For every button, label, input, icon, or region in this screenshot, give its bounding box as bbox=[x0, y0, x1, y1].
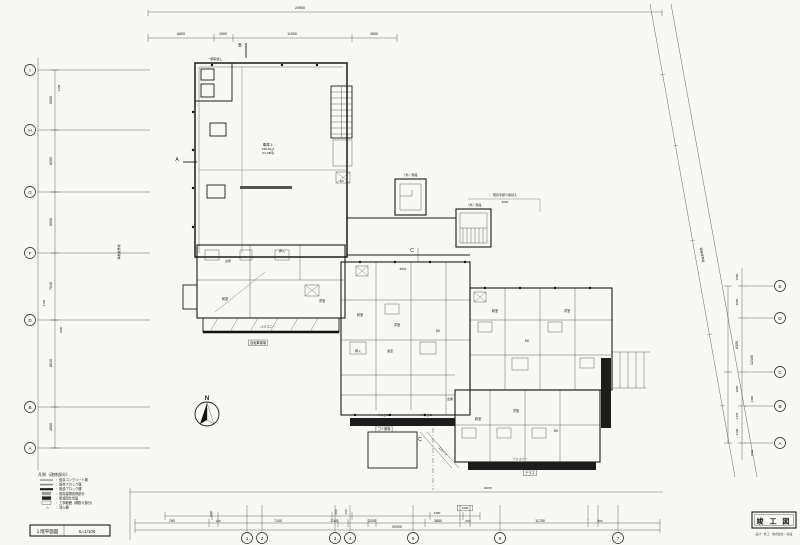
legend-item-gray-line: ：既存ブロック塀 bbox=[40, 482, 82, 487]
dimension-label: 12100 bbox=[750, 355, 754, 365]
legend-item-label: ：新設ブロック塀 bbox=[56, 486, 82, 491]
grid-bubble-label: 3 bbox=[334, 536, 337, 541]
legend-item-label: ：工事範囲（網掛け部分） bbox=[56, 500, 94, 505]
dimension-label-text: 1900 bbox=[219, 32, 227, 36]
dimension-label: 760 bbox=[169, 519, 175, 523]
dimension-label-text: 2000 bbox=[735, 298, 739, 305]
dimension-label: 6000 bbox=[49, 157, 53, 165]
drawing-sheet: 車庫１ 236.32㎡ (71.48坪) bbox=[0, 0, 800, 545]
dimension-label: 1280 bbox=[434, 511, 441, 515]
annotation-label-text: スロープ bbox=[437, 445, 449, 457]
room-labels: バルコニーバルコニーバルコニーバルコニー自転車置場ゴミ置場テラス和室洋室DK押入… bbox=[222, 179, 570, 476]
room-label: 浴室 bbox=[387, 348, 393, 353]
room-label-text: 洋室 bbox=[564, 308, 570, 313]
dimension-label: 8040 bbox=[49, 359, 53, 367]
legend-item-label: ：既存ブロック塀 bbox=[56, 482, 82, 487]
dimension-label-text: 2100 bbox=[57, 84, 61, 91]
grid-bubble-label: A bbox=[28, 446, 32, 451]
north-arrow: N bbox=[195, 396, 219, 426]
dimension-label-text: 12100 bbox=[750, 355, 754, 365]
dimension-label-text: 600 bbox=[344, 509, 348, 514]
legend: 凡例（改修部分） ：既存コンクリート塀：既存ブロック塀：新設ブロック塀：既存建物… bbox=[38, 471, 94, 510]
room-label-text: 洋室 bbox=[513, 408, 519, 413]
dimension-chains bbox=[51, 34, 746, 533]
wall-fill bbox=[601, 358, 611, 428]
dimension-label-text: 6300 bbox=[735, 341, 739, 349]
grid-bubble-label: 5 bbox=[412, 536, 415, 541]
room-label: 押入 bbox=[279, 248, 285, 253]
grid-bubble-G: G bbox=[25, 187, 151, 198]
annotation-label-text: （外）階段 bbox=[402, 172, 417, 177]
annotation-label: A bbox=[175, 157, 179, 163]
annotation-label-text: C bbox=[418, 437, 422, 443]
grid-bubble-A: A bbox=[25, 443, 151, 454]
dimension-label-text: 600 bbox=[334, 509, 338, 514]
dimension-label-text: 7100 bbox=[274, 519, 282, 523]
column-dots bbox=[354, 261, 591, 416]
room-label: 和室 bbox=[475, 416, 481, 421]
legend-item-label: ：既存コンクリート塀 bbox=[56, 477, 89, 482]
garage-tsubo: (71.48坪) bbox=[262, 150, 275, 155]
room-label-text: テラス bbox=[525, 470, 535, 475]
balcony-band bbox=[350, 418, 455, 426]
dimension-label-text: 3000 bbox=[502, 200, 509, 204]
dimension-label: 1500 bbox=[750, 449, 754, 456]
room-label-text: 和室 bbox=[222, 296, 228, 301]
annotation-label: スロープ bbox=[437, 445, 449, 457]
dimension-label: 6600 bbox=[177, 32, 185, 36]
annotation-label: B bbox=[238, 43, 242, 49]
room-label-text: バルコニー bbox=[513, 457, 528, 461]
room-label-text: 浴室 bbox=[387, 348, 393, 353]
grid-bubble-label: H bbox=[28, 128, 31, 133]
grid-bubble-label: D bbox=[778, 316, 782, 321]
dimension-label: 600 bbox=[334, 509, 338, 514]
room-label-text: 押入 bbox=[355, 348, 361, 353]
dimension-label-text: 1280 bbox=[434, 511, 441, 515]
dimension-label-text: 1470 bbox=[735, 412, 739, 419]
garage-room-label: 車庫１ 236.32㎡ (71.48坪) bbox=[262, 142, 275, 155]
dimension-label-text: 760 bbox=[169, 519, 175, 523]
balcony-band bbox=[468, 462, 596, 470]
annotation-label-text: A bbox=[175, 157, 179, 163]
dimension-label: 1800 bbox=[735, 385, 739, 392]
dimension-label-text: 1500 bbox=[735, 273, 739, 280]
legend-item-thick-line: ：新設ブロック塀 bbox=[40, 486, 82, 491]
room-label: DK bbox=[436, 329, 441, 333]
grid-bubble-label: B bbox=[778, 404, 781, 409]
annotation-label-text: C bbox=[410, 248, 414, 254]
central-unit-block bbox=[341, 261, 650, 470]
dimension-label-text: 1500 bbox=[750, 449, 754, 456]
grid-bubble-H: H bbox=[25, 125, 151, 136]
dimension-label-text: 130 bbox=[215, 519, 220, 523]
grid-bubble-label: 7 bbox=[617, 536, 620, 541]
room-label-text: 自転車置場 bbox=[250, 340, 267, 345]
grid-bubble-I: I bbox=[25, 65, 151, 76]
dimension-label: 2000 bbox=[735, 298, 739, 305]
room-label: 台所 bbox=[225, 258, 231, 263]
dimension-label-text: 24900 bbox=[295, 6, 305, 10]
room-label: DK bbox=[554, 429, 559, 433]
dimension-labels: 2490066001900119004500600060006000704080… bbox=[42, 6, 754, 529]
dimension-label-text: 50900 bbox=[392, 525, 402, 529]
room-label-text: 和室 bbox=[492, 308, 498, 313]
dimension-label: 24900 bbox=[295, 6, 305, 10]
dimension-label: 600 bbox=[344, 509, 348, 514]
dimension-label-text: 6000 bbox=[49, 157, 53, 165]
site-boundary bbox=[38, 4, 757, 540]
grid-bubble-B: B bbox=[25, 402, 151, 413]
grid-bubble-D: D bbox=[25, 315, 151, 326]
dimension-label: 3850 bbox=[434, 519, 442, 523]
dimension-label: 1000 bbox=[457, 505, 472, 511]
annotation-label: 一部取壊し bbox=[207, 56, 222, 61]
dimension-label-text: 4190 bbox=[735, 428, 739, 435]
dimension-label: 1160 bbox=[330, 519, 338, 523]
grid-bubble-label: F bbox=[29, 251, 32, 256]
dimension-label: 6000 bbox=[49, 96, 53, 104]
grid-bubble-label: B bbox=[28, 405, 31, 410]
room-label-text: 台所 bbox=[225, 258, 231, 263]
dimension-label-text: 1500 bbox=[59, 326, 63, 333]
legend-item-double-line: ：既存コンクリート塀 bbox=[40, 477, 89, 482]
sheet-label-box: １階平面図 S=1/100 bbox=[30, 525, 110, 536]
dimension-label-text: 2400 bbox=[750, 395, 754, 402]
dimension-label-text: 34070 bbox=[484, 486, 493, 490]
annotation-label: 既存手摺り取替え bbox=[493, 192, 517, 197]
dimension-label: 8697 bbox=[400, 267, 407, 271]
dimension-label: 11900 bbox=[287, 32, 297, 36]
grid-bubble-6: 6 bbox=[495, 505, 506, 544]
grid-bubble-label: 4 bbox=[349, 536, 352, 541]
dimension-label: 2100 bbox=[57, 84, 61, 91]
room-label-text: 押入 bbox=[279, 248, 285, 253]
floor-plan-canvas: 車庫１ 236.32㎡ (71.48坪) bbox=[0, 0, 800, 545]
room-label: 洋室 bbox=[513, 408, 519, 413]
annotation-label-text: 道路境界線 bbox=[699, 247, 707, 263]
grid-bubble-1: 1 bbox=[242, 505, 253, 544]
annotation-label: （外）階段 bbox=[466, 202, 481, 207]
dimension-label: 6300 bbox=[735, 341, 739, 349]
legend-item-triangle: △：消火器 bbox=[46, 505, 70, 510]
room-label-text: DK bbox=[525, 339, 530, 343]
title-block: 竣 工 図 設計・施工 株式会社○○建設 bbox=[752, 512, 796, 536]
dimension-label: 11750 bbox=[535, 519, 545, 523]
dimension-label: 2400 bbox=[750, 395, 754, 402]
room-label-text: 和室 bbox=[475, 416, 481, 421]
room-label: 洋室 bbox=[394, 322, 400, 327]
dimension-label-text: 1160 bbox=[330, 519, 338, 523]
room-label: 自転車置場 bbox=[248, 340, 267, 346]
grid-bubble-F: F bbox=[25, 248, 151, 259]
legend-item-label: ：既存建物改修部分 bbox=[56, 491, 85, 496]
annotation-label-text: 一部取壊し bbox=[207, 56, 222, 61]
dimension-label: 1500 bbox=[59, 326, 63, 333]
room-label-text: 洋室 bbox=[394, 322, 400, 327]
legend-item-open-box: ：工事範囲（網掛け部分） bbox=[42, 500, 94, 505]
dimension-label-text: 7040 bbox=[49, 282, 53, 290]
dimension-label: 7100 bbox=[274, 519, 282, 523]
room-label: 和室 bbox=[357, 312, 363, 317]
room-label-text: 玄関 bbox=[447, 396, 453, 401]
annotation-label-text: 隣地境界線 bbox=[116, 244, 121, 259]
room-label: EV bbox=[340, 179, 344, 183]
legend-item-label: ：消火器 bbox=[56, 505, 70, 510]
dimension-label-text: 1370 bbox=[209, 510, 213, 517]
dimension-label-text: 6000 bbox=[49, 96, 53, 104]
dimension-label-text: 8040 bbox=[49, 359, 53, 367]
drawing-title: 竣 工 図 bbox=[757, 517, 792, 526]
legend-item-label: ：新設間仕切壁 bbox=[56, 495, 79, 500]
dimension-label-text: 3850 bbox=[434, 519, 442, 523]
legend-rows: ：既存コンクリート塀：既存ブロック塀：新設ブロック塀：既存建物改修部分：新設間仕… bbox=[40, 477, 94, 510]
room-label-text: EV bbox=[340, 179, 344, 183]
dimension-label-text: 6600 bbox=[177, 32, 185, 36]
dimension-label-text: 11900 bbox=[287, 32, 297, 36]
room-label: 和室 bbox=[492, 308, 498, 313]
sheet-scale: S=1/100 bbox=[79, 529, 96, 534]
annotation-label-text: B bbox=[238, 43, 242, 49]
annotation-label: C bbox=[410, 248, 414, 254]
room-label-text: ゴミ置場 bbox=[378, 426, 392, 431]
dimension-label-text: 1140 bbox=[42, 299, 46, 306]
dimension-label-text: 8697 bbox=[400, 267, 407, 271]
dimension-label-text: 400 bbox=[465, 519, 470, 523]
grid-bubble-A: A bbox=[745, 438, 786, 449]
dimension-label: 130 bbox=[215, 519, 220, 523]
dimension-label: 1370 bbox=[209, 510, 213, 517]
dimension-label-text: 1800 bbox=[735, 385, 739, 392]
grid-bubble-label: A bbox=[778, 441, 782, 446]
sheet-label: １階平面図 bbox=[36, 528, 59, 535]
grid-bubble-label: 1 bbox=[246, 536, 249, 541]
exterior-stairs bbox=[347, 179, 540, 255]
room-label: 洋室 bbox=[319, 298, 325, 303]
column-dots bbox=[192, 64, 318, 228]
room-label-text: バルコニー bbox=[378, 413, 393, 417]
legend-header: 凡例（改修部分） bbox=[38, 471, 70, 477]
annotation-label-text: （外）階段 bbox=[466, 202, 481, 207]
dimension-label-text: 800 bbox=[597, 519, 602, 523]
dimension-label: 4190 bbox=[735, 428, 739, 435]
grid-bubble-2: 2 bbox=[257, 505, 268, 544]
grid-bubble-label: E bbox=[778, 284, 781, 289]
room-label: 押入 bbox=[355, 348, 361, 353]
dimension-label: 1500 bbox=[735, 273, 739, 280]
room-label-text: DK bbox=[436, 329, 441, 333]
grid-bubbles: IHGFDBAEDCBA1234567 bbox=[25, 65, 786, 544]
dimension-label: 4500 bbox=[49, 423, 53, 431]
annotation-label: C bbox=[418, 437, 422, 443]
grid-bubble-D: D bbox=[745, 313, 786, 324]
grid-bubble-7: 7 bbox=[613, 505, 624, 544]
dimension-label: 800 bbox=[597, 519, 602, 523]
room-label: ゴミ置場 bbox=[376, 426, 392, 432]
room-label: バルコニー bbox=[260, 325, 276, 329]
annotation-label: （外）階段 bbox=[402, 172, 417, 177]
left-unit-block bbox=[183, 245, 345, 332]
annotation-label: 隣地境界線 bbox=[116, 244, 121, 259]
grid-bubble-5: 5 bbox=[408, 505, 419, 544]
dimension-label: 400 bbox=[465, 519, 470, 523]
grid-bubble-label: G bbox=[28, 190, 32, 195]
dimension-label: 34070 bbox=[484, 486, 493, 490]
room-label: バルコニー bbox=[421, 413, 436, 417]
legend-item-hatch-box: ：既存建物改修部分 bbox=[42, 491, 85, 496]
dimension-label-text: 4500 bbox=[370, 32, 378, 36]
room-label-text: 和室 bbox=[357, 312, 363, 317]
dimension-label: 50900 bbox=[392, 525, 402, 529]
room-label: 玄関 bbox=[447, 396, 453, 401]
garage-block: 車庫１ 236.32㎡ (71.48坪) bbox=[192, 63, 352, 257]
drawing-subtitle: 設計・施工 株式会社○○建設 bbox=[756, 532, 793, 536]
legend-symbol-triangle: △ bbox=[46, 506, 49, 510]
room-label-text: DK bbox=[554, 429, 559, 433]
grid-bubble-label: C bbox=[778, 370, 782, 375]
dimension-label: 4500 bbox=[370, 32, 378, 36]
room-label-text: バルコニー bbox=[260, 325, 276, 329]
dimension-label-text: 4500 bbox=[49, 423, 53, 431]
room-label: DK bbox=[525, 339, 530, 343]
grid-bubble-label: 2 bbox=[261, 536, 264, 541]
room-label: 洋室 bbox=[564, 308, 570, 313]
dimension-label-text: 6000 bbox=[49, 218, 53, 226]
grid-bubble-E: E bbox=[745, 281, 786, 292]
annotation-label: 道路境界線 bbox=[699, 247, 707, 263]
dimension-label: 1140 bbox=[42, 299, 46, 306]
grid-bubble-label: I bbox=[29, 68, 30, 73]
legend-item-solid-box: ：新設間仕切壁 bbox=[42, 495, 79, 500]
room-label: バルコニー bbox=[378, 413, 393, 417]
room-label-text: バルコニー bbox=[421, 413, 436, 417]
dimension-label: 1470 bbox=[735, 412, 739, 419]
north-label: N bbox=[205, 396, 209, 402]
grid-bubble-label: D bbox=[28, 318, 32, 323]
room-label-text: 洋室 bbox=[319, 298, 325, 303]
grid-bubble-C: C bbox=[745, 367, 786, 378]
dimension-label-text: 3200 bbox=[368, 519, 376, 523]
room-label: バルコニー bbox=[513, 457, 528, 461]
dimension-label-text: 11750 bbox=[535, 519, 545, 523]
dimension-label: 6000 bbox=[49, 218, 53, 226]
annotation-label-text: 既存手摺り取替え bbox=[493, 192, 517, 197]
dimension-label: 3200 bbox=[368, 519, 376, 523]
dimension-label: 3000 bbox=[502, 200, 509, 204]
dimension-label-text: 1000 bbox=[462, 506, 469, 510]
room-label: 和室 bbox=[222, 296, 228, 301]
dimension-label: 1900 bbox=[219, 32, 227, 36]
room-label: テラス bbox=[523, 470, 536, 476]
grid-bubble-label: 6 bbox=[499, 536, 502, 541]
dimension-label: 7040 bbox=[49, 282, 53, 290]
